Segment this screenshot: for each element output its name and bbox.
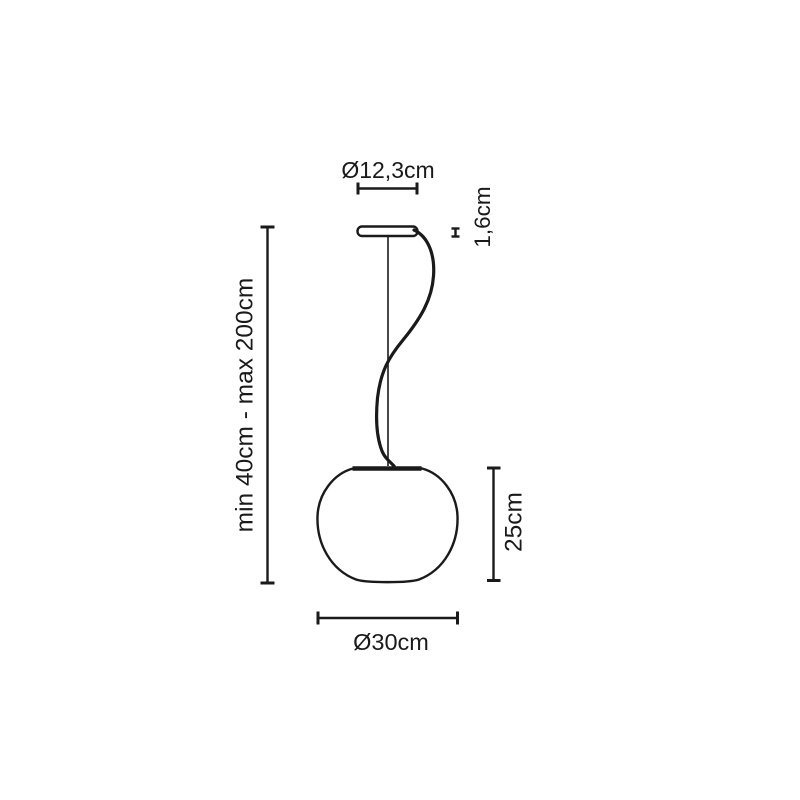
canopy-diameter-dimension-line	[358, 183, 417, 195]
ceiling-canopy	[358, 227, 418, 237]
pendant-lamp-drawing: Ø12,3cm 1,6cm min 40cm - max 200cm	[0, 0, 800, 800]
canopy-thickness-dimension-line	[452, 229, 460, 237]
diffuser-shade	[317, 469, 457, 583]
suspension-length-label: min 40cm - max 200cm	[231, 278, 258, 533]
diffuser-diameter-dimension-line	[318, 612, 458, 625]
canopy-diameter-label: Ø12,3cm	[341, 157, 434, 183]
diffuser-height-label: 25cm	[500, 492, 527, 552]
diffuser-height-dimension-line	[487, 468, 501, 581]
canopy-thickness-label: 1,6cm	[470, 186, 495, 247]
diffuser-diameter-label: Ø30cm	[353, 629, 429, 655]
power-cable	[377, 230, 434, 466]
dimension-diagram: Ø12,3cm 1,6cm min 40cm - max 200cm	[0, 0, 800, 800]
suspension-length-dimension-line	[261, 227, 275, 583]
